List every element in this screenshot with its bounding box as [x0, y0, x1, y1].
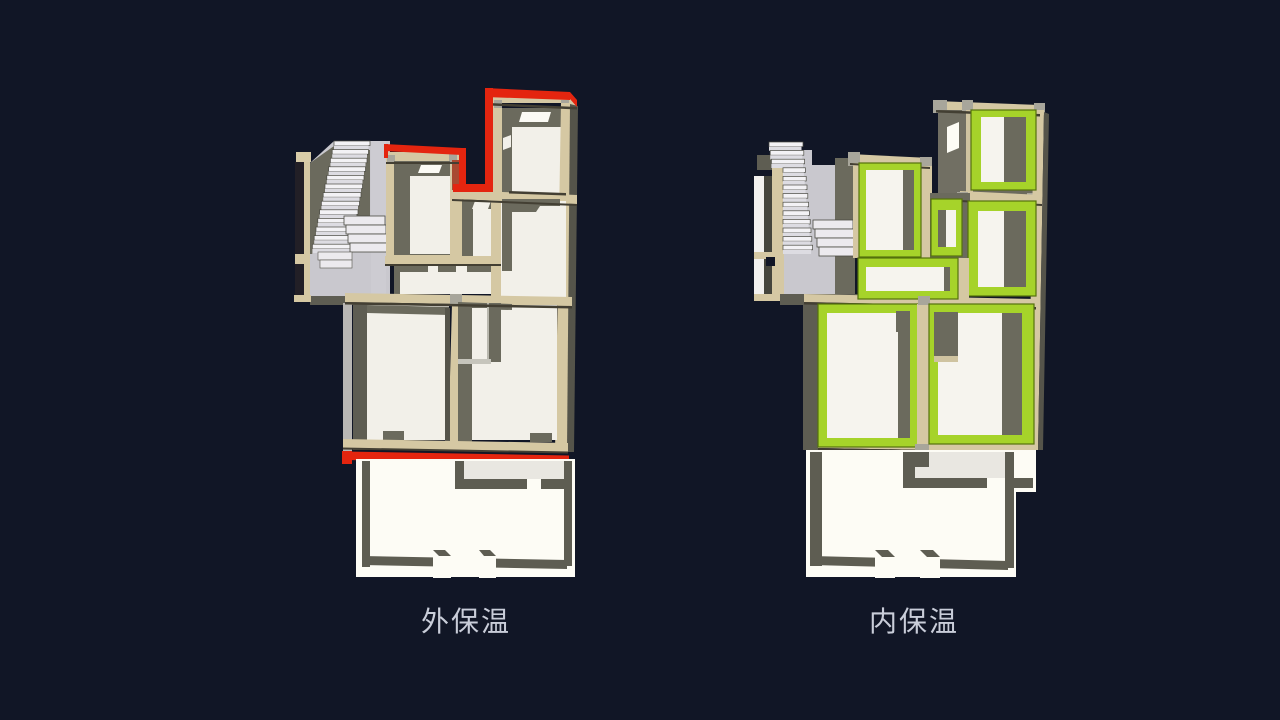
- svg-text:内保温: 内保温: [869, 606, 959, 637]
- svg-text:外保温: 外保温: [421, 606, 511, 637]
